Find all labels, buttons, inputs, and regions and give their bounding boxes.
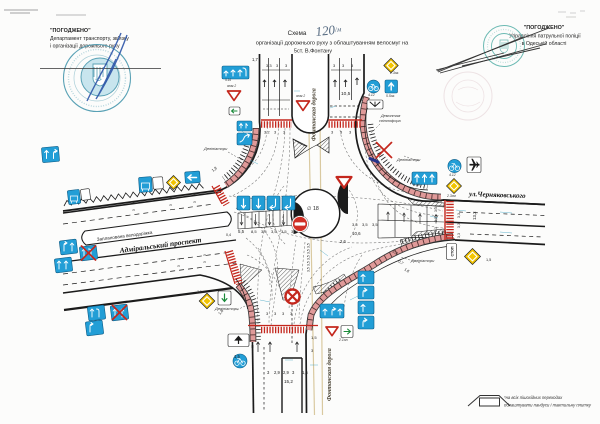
svg-text:3,3: 3,3 (434, 227, 438, 232)
svg-text:Делініатори: Делініатори (203, 146, 228, 151)
svg-text:8,5: 8,5 (251, 229, 257, 234)
svg-text:Делініатори: Делініатори (214, 306, 239, 311)
svg-text:13,2: 13,2 (472, 211, 477, 220)
svg-text:2,9: 2,9 (274, 370, 280, 375)
svg-text:Фонтанская дорога: Фонтанская дорога (311, 88, 318, 141)
svg-text:3,3: 3,3 (457, 233, 461, 238)
svg-text:3,3: 3,3 (434, 207, 438, 212)
svg-text:3,5: 3,5 (307, 267, 311, 272)
svg-text:3,3: 3,3 (457, 213, 461, 218)
svg-text:Демонтаж: Демонтаж (380, 114, 401, 118)
svg-text:5ст. В.Фонтану: 5ст. В.Фонтану (294, 49, 332, 55)
svg-text:2,6: 2,6 (340, 239, 346, 244)
svg-text:3,5: 3,5 (307, 255, 311, 260)
svg-text:3,3: 3,3 (266, 63, 272, 68)
svg-text:0,4: 0,4 (226, 233, 231, 237)
svg-text:1,7: 1,7 (252, 57, 258, 62)
svg-text:3,5: 3,5 (271, 229, 277, 234)
svg-text:Делініатори: Делініатори (410, 258, 435, 263)
svg-text:5,5: 5,5 (238, 229, 245, 234)
svg-text:∅ 18: ∅ 18 (307, 206, 319, 212)
svg-text:"ПОГОДЖЕНО": "ПОГОДЖЕНО" (50, 28, 91, 34)
svg-text:2,9: 2,9 (283, 370, 289, 375)
svg-text:в Одеській області: в Одеській області (522, 40, 567, 47)
svg-text:облаштувати пандуси і тактильн: облаштувати пандуси і тактильну плитку (504, 403, 592, 408)
svg-text:10,5: 10,5 (341, 91, 351, 97)
svg-text:4.12: 4.12 (449, 173, 456, 177)
svg-text:3,5: 3,5 (352, 222, 358, 227)
svg-text:10,6: 10,6 (352, 231, 361, 236)
svg-text:3,5: 3,5 (261, 229, 267, 234)
svg-text:5.16: 5.16 (225, 78, 231, 82)
svg-text:3,5: 3,5 (362, 222, 368, 227)
svg-text:4.12: 4.12 (368, 93, 375, 97)
svg-text:3,5: 3,5 (281, 229, 287, 234)
svg-text:світлофора: світлофора (379, 119, 401, 123)
svg-text:2.3см: 2.3см (446, 194, 456, 198)
svg-text:1,5: 1,5 (302, 370, 308, 375)
svg-text:5.16: 5.16 (413, 183, 420, 187)
svg-text:організації дорожнього руху з: організації дорожнього руху з облаштуван… (256, 41, 409, 47)
svg-text:*на всіх пішохідних переходах: *на всіх пішохідних переходах (504, 395, 563, 400)
svg-text:Фонтанская дорога: Фонтанская дорога (326, 348, 333, 401)
svg-text:3,5: 3,5 (307, 261, 311, 266)
svg-text:3,3: 3,3 (457, 223, 461, 228)
svg-text:3,5: 3,5 (372, 222, 378, 227)
svg-text:знак 2: знак 2 (295, 94, 305, 98)
svg-text:3,5: 3,5 (307, 249, 311, 254)
svg-text:3,2: 3,2 (264, 130, 270, 135)
svg-text:15,2: 15,2 (284, 379, 293, 384)
svg-text:знак 2: знак 2 (226, 84, 236, 88)
svg-text:1,5: 1,5 (234, 354, 240, 359)
svg-text:Схема: Схема (288, 30, 307, 37)
svg-text:СТОП: СТОП (451, 246, 455, 256)
svg-text:1,5: 1,5 (311, 335, 317, 340)
svg-text:3,5: 3,5 (307, 243, 311, 248)
svg-text:1,5: 1,5 (486, 258, 491, 262)
svg-text:2.1он.: 2.1он. (338, 338, 348, 342)
svg-text:5.5ок.: 5.5ок. (386, 94, 395, 98)
svg-text:2.3ок.: 2.3ок. (389, 71, 399, 75)
svg-text:2.3ок: 2.3ок (196, 290, 205, 294)
svg-text:3,5: 3,5 (291, 229, 297, 234)
